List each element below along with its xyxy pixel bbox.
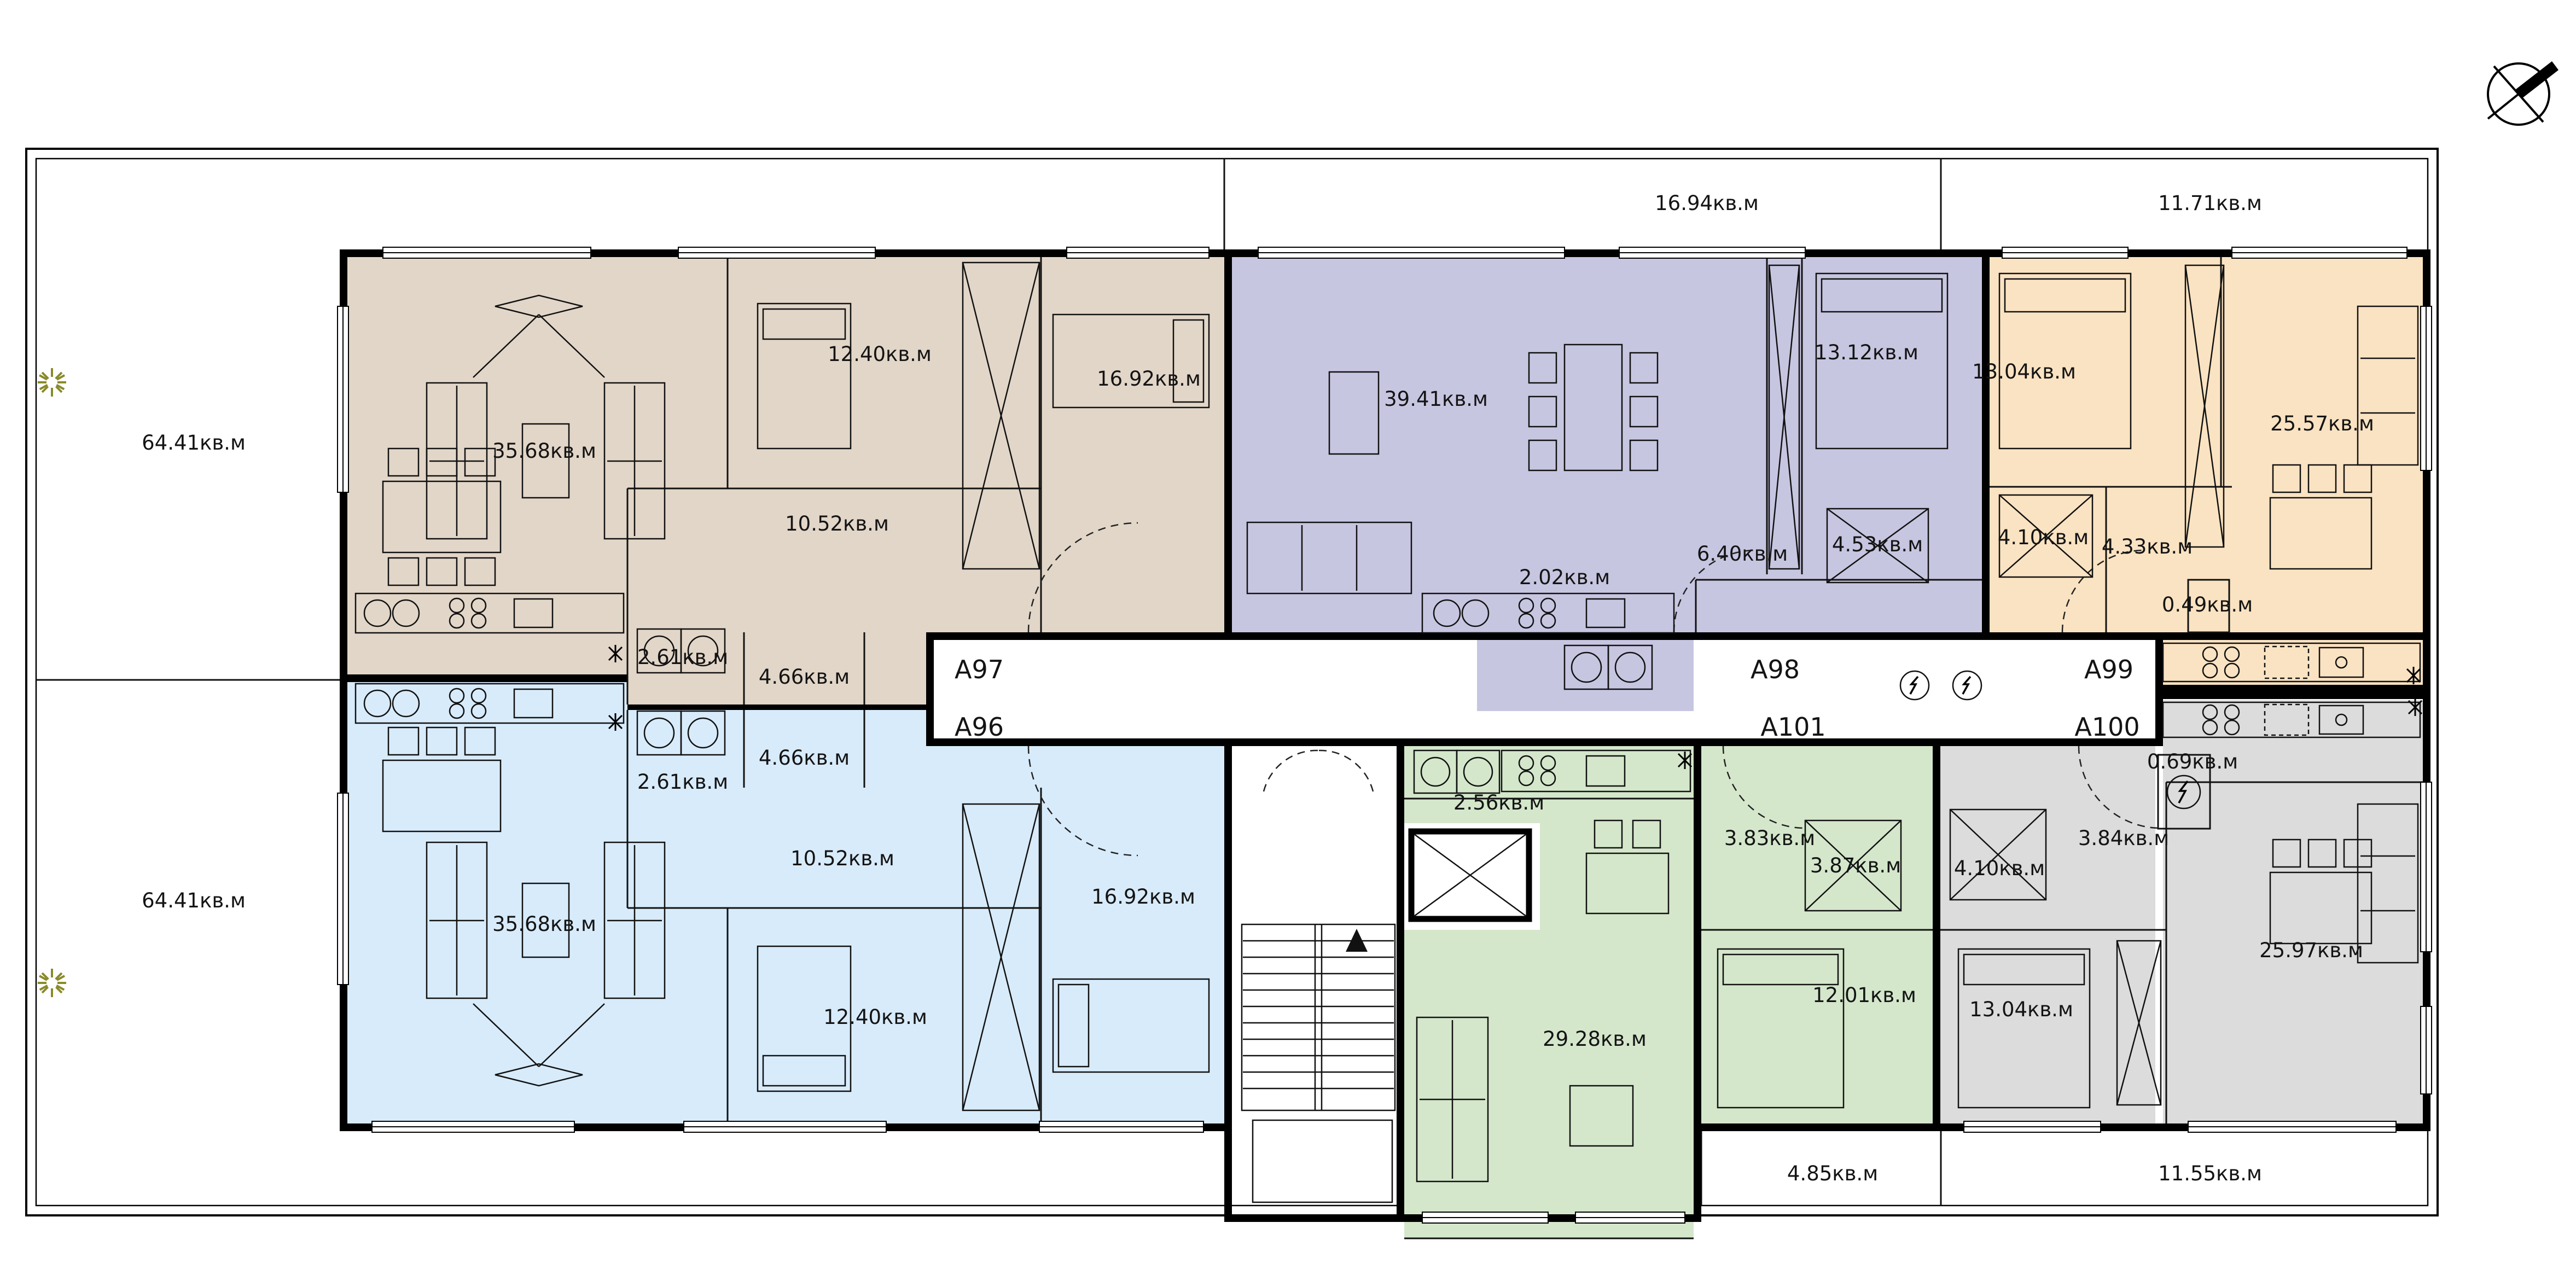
unit-id-label: A99 bbox=[2084, 655, 2133, 684]
room-area-label: 2.61кв.м bbox=[637, 770, 728, 794]
window bbox=[2232, 247, 2407, 258]
room-area-label: 29.28кв.м bbox=[1543, 1027, 1647, 1051]
room-area-label: 4.53кв.м bbox=[1832, 533, 1923, 556]
room-area-label: 39.41кв.м bbox=[1384, 387, 1488, 411]
room-area-label: 13.04кв.м bbox=[1972, 360, 2076, 383]
room-area-label: 13.04кв.м bbox=[1969, 998, 2073, 1021]
room-area-label: 4.10кв.м bbox=[1954, 857, 2045, 880]
room-area-label: 3.87кв.м bbox=[1810, 854, 1901, 877]
window bbox=[1039, 1121, 1203, 1132]
unit-id-label: A100 bbox=[2074, 712, 2139, 742]
room-area-label: 12.40кв.м bbox=[828, 342, 932, 366]
room-area-label: 10.52кв.м bbox=[785, 512, 889, 535]
room-area-label: 25.97кв.м bbox=[2259, 939, 2363, 962]
electrical-panel-icon bbox=[1900, 671, 1929, 700]
terrace-area-label: 4.85кв.м bbox=[1787, 1162, 1878, 1185]
room-area-label: 25.57кв.м bbox=[2270, 412, 2374, 435]
window bbox=[1619, 247, 1805, 258]
room-area-label: 0.49кв.м bbox=[2162, 593, 2253, 616]
window bbox=[2002, 247, 2128, 258]
compass-icon bbox=[2488, 61, 2558, 125]
window bbox=[2421, 782, 2432, 952]
door-arc bbox=[1318, 750, 1373, 791]
terrace-area-label: 11.55кв.м bbox=[2158, 1162, 2262, 1185]
floor-plan-svg: 16.94кв.м 11.71кв.м 64.41кв.м 64.41кв.м … bbox=[0, 0, 2576, 1275]
window bbox=[2188, 1121, 2396, 1132]
stairs bbox=[1242, 924, 1395, 1202]
room-area-label: 3.83кв.м bbox=[1724, 826, 1815, 850]
window bbox=[1575, 1212, 1685, 1223]
unit-id-label: A96 bbox=[955, 712, 1004, 742]
terrace-area-label: 64.41кв.м bbox=[142, 431, 246, 455]
room-area-label: 6.40кв.м bbox=[1697, 542, 1788, 566]
window bbox=[338, 306, 348, 492]
door-arc bbox=[1264, 750, 1318, 791]
room-area-label: 10.52кв.м bbox=[790, 847, 894, 870]
sun-icon bbox=[38, 368, 66, 397]
room-area-label: 35.68кв.м bbox=[492, 439, 596, 463]
terrace-area-label: 64.41кв.м bbox=[142, 889, 246, 912]
apartment-a98-region bbox=[1232, 257, 1982, 711]
room-area-label: 16.92кв.м bbox=[1091, 885, 1195, 909]
window bbox=[338, 793, 348, 985]
room-area-label: 4.33кв.м bbox=[2102, 535, 2193, 558]
room-area-label: 35.68кв.м bbox=[492, 912, 596, 936]
window bbox=[1422, 1212, 1548, 1223]
terrace-area-label: 16.94кв.м bbox=[1655, 191, 1759, 215]
unit-id-label: A101 bbox=[1760, 712, 1825, 742]
room-area-label: 2.02кв.м bbox=[1519, 566, 1610, 589]
room-area-label: 13.12кв.м bbox=[1815, 341, 1918, 364]
room-area-label: 4.66кв.м bbox=[759, 665, 850, 689]
window bbox=[2421, 306, 2432, 470]
room-area-label: 0.69кв.м bbox=[2147, 750, 2238, 773]
stair-landing bbox=[1253, 1120, 1392, 1202]
window bbox=[1258, 247, 1565, 258]
room-area-label: 2.56кв.м bbox=[1453, 791, 1544, 814]
terrace-area-label: 11.71кв.м bbox=[2158, 191, 2262, 215]
floor-plan-page: 16.94кв.м 11.71кв.м 64.41кв.м 64.41кв.м … bbox=[0, 0, 2576, 1275]
sun-icons bbox=[38, 368, 66, 997]
window bbox=[372, 1121, 574, 1132]
room-area-label: 4.10кв.м bbox=[1998, 526, 2089, 549]
compass-needle bbox=[2515, 61, 2558, 98]
window bbox=[383, 247, 591, 258]
unit-id-label: A97 bbox=[955, 655, 1004, 684]
elevator-icon bbox=[1411, 831, 1529, 919]
window bbox=[1067, 247, 1209, 258]
unit-id-label: A98 bbox=[1751, 655, 1800, 684]
window bbox=[1964, 1121, 2101, 1132]
room-area-label: 16.92кв.м bbox=[1097, 367, 1201, 391]
window bbox=[2421, 1006, 2432, 1094]
room-area-label: 12.40кв.м bbox=[823, 1005, 927, 1029]
window bbox=[684, 1121, 886, 1132]
room-area-label: 3.84кв.м bbox=[2078, 826, 2169, 850]
room-area-label: 4.66кв.м bbox=[759, 746, 850, 770]
room-area-label: 12.01кв.м bbox=[1812, 983, 1916, 1007]
sun-icon bbox=[38, 969, 66, 997]
window bbox=[678, 247, 875, 258]
electrical-panel-icon bbox=[1953, 671, 1981, 700]
room-area-label: 2.61кв.м bbox=[637, 645, 728, 669]
